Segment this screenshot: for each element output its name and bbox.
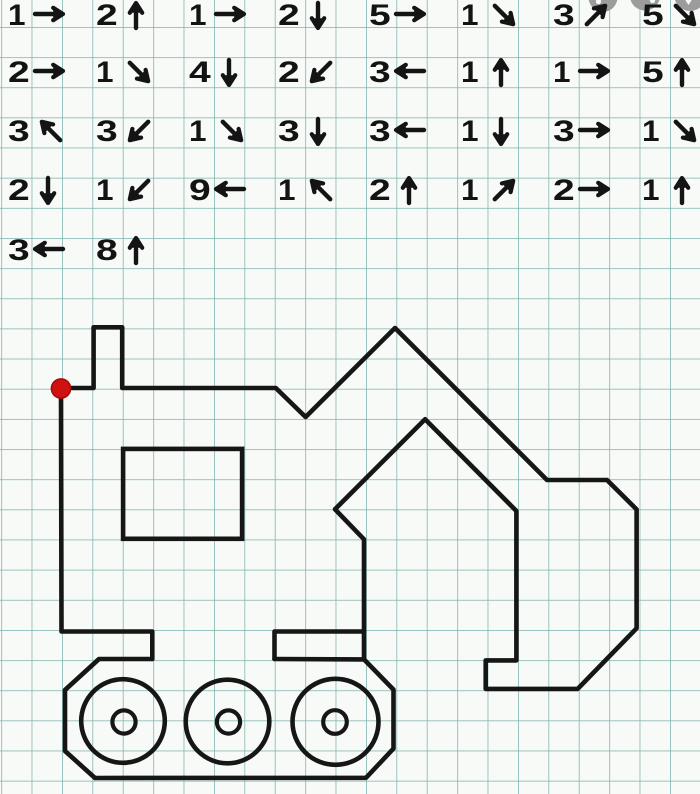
svg-text:1: 1 xyxy=(461,173,479,207)
svg-text:2: 2 xyxy=(8,174,30,207)
svg-text:2: 2 xyxy=(96,0,118,32)
svg-text:3: 3 xyxy=(369,115,391,148)
svg-text:3: 3 xyxy=(369,56,391,89)
svg-text:5: 5 xyxy=(642,56,664,89)
svg-text:3: 3 xyxy=(96,115,118,148)
svg-text:1: 1 xyxy=(189,114,207,148)
svg-text:2: 2 xyxy=(553,174,575,207)
svg-text:4: 4 xyxy=(189,56,211,89)
svg-text:1: 1 xyxy=(642,114,660,148)
svg-text:3: 3 xyxy=(553,0,575,32)
svg-text:1: 1 xyxy=(642,173,660,207)
svg-text:2: 2 xyxy=(278,56,300,89)
svg-text:1: 1 xyxy=(278,173,296,207)
svg-text:2: 2 xyxy=(8,56,30,89)
svg-text:1: 1 xyxy=(189,0,207,32)
svg-text:5: 5 xyxy=(369,0,391,32)
svg-text:9: 9 xyxy=(189,174,211,207)
svg-text:5: 5 xyxy=(642,0,664,32)
svg-text:3: 3 xyxy=(8,115,30,148)
svg-text:1: 1 xyxy=(553,55,571,89)
svg-text:2: 2 xyxy=(278,0,300,32)
svg-text:1: 1 xyxy=(96,55,114,89)
svg-text:8: 8 xyxy=(96,234,118,267)
svg-text:3: 3 xyxy=(278,115,300,148)
svg-text:1: 1 xyxy=(461,0,479,32)
svg-text:1: 1 xyxy=(461,55,479,89)
svg-text:3: 3 xyxy=(553,115,575,148)
svg-text:1: 1 xyxy=(461,114,479,148)
svg-text:1: 1 xyxy=(96,173,114,207)
svg-text:2: 2 xyxy=(369,174,391,207)
svg-text:1: 1 xyxy=(8,0,26,32)
svg-text:3: 3 xyxy=(8,234,30,267)
